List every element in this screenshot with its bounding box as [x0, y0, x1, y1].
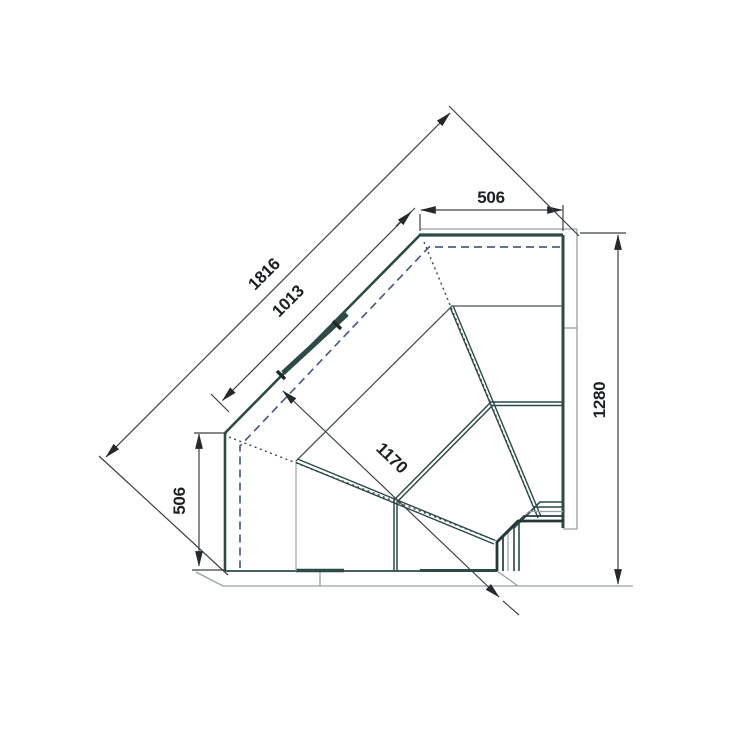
label-right-depth: 1280 [590, 382, 609, 419]
label-diagonal-front: 1013 [268, 281, 307, 320]
corner-counter-plan-drawing: 506 1816 1013 506 1170 1280 [0, 0, 750, 750]
shelf-line-outer-doubled [394, 402, 563, 571]
label-top-width: 506 [477, 188, 504, 207]
label-left-depth: 506 [170, 487, 189, 514]
dimension-corner-diagonal [283, 391, 519, 615]
dimension-top-width [420, 205, 563, 231]
label-diagonal-overall: 1816 [244, 254, 283, 293]
dimension-left-depth [192, 433, 227, 570]
corner-step-detail [497, 502, 563, 571]
dimension-diagonal-front [211, 208, 415, 412]
dimension-labels: 506 1816 1013 506 1170 1280 [170, 188, 609, 515]
label-corner-diagonal: 1170 [372, 439, 411, 477]
dimension-annotations [99, 106, 626, 615]
